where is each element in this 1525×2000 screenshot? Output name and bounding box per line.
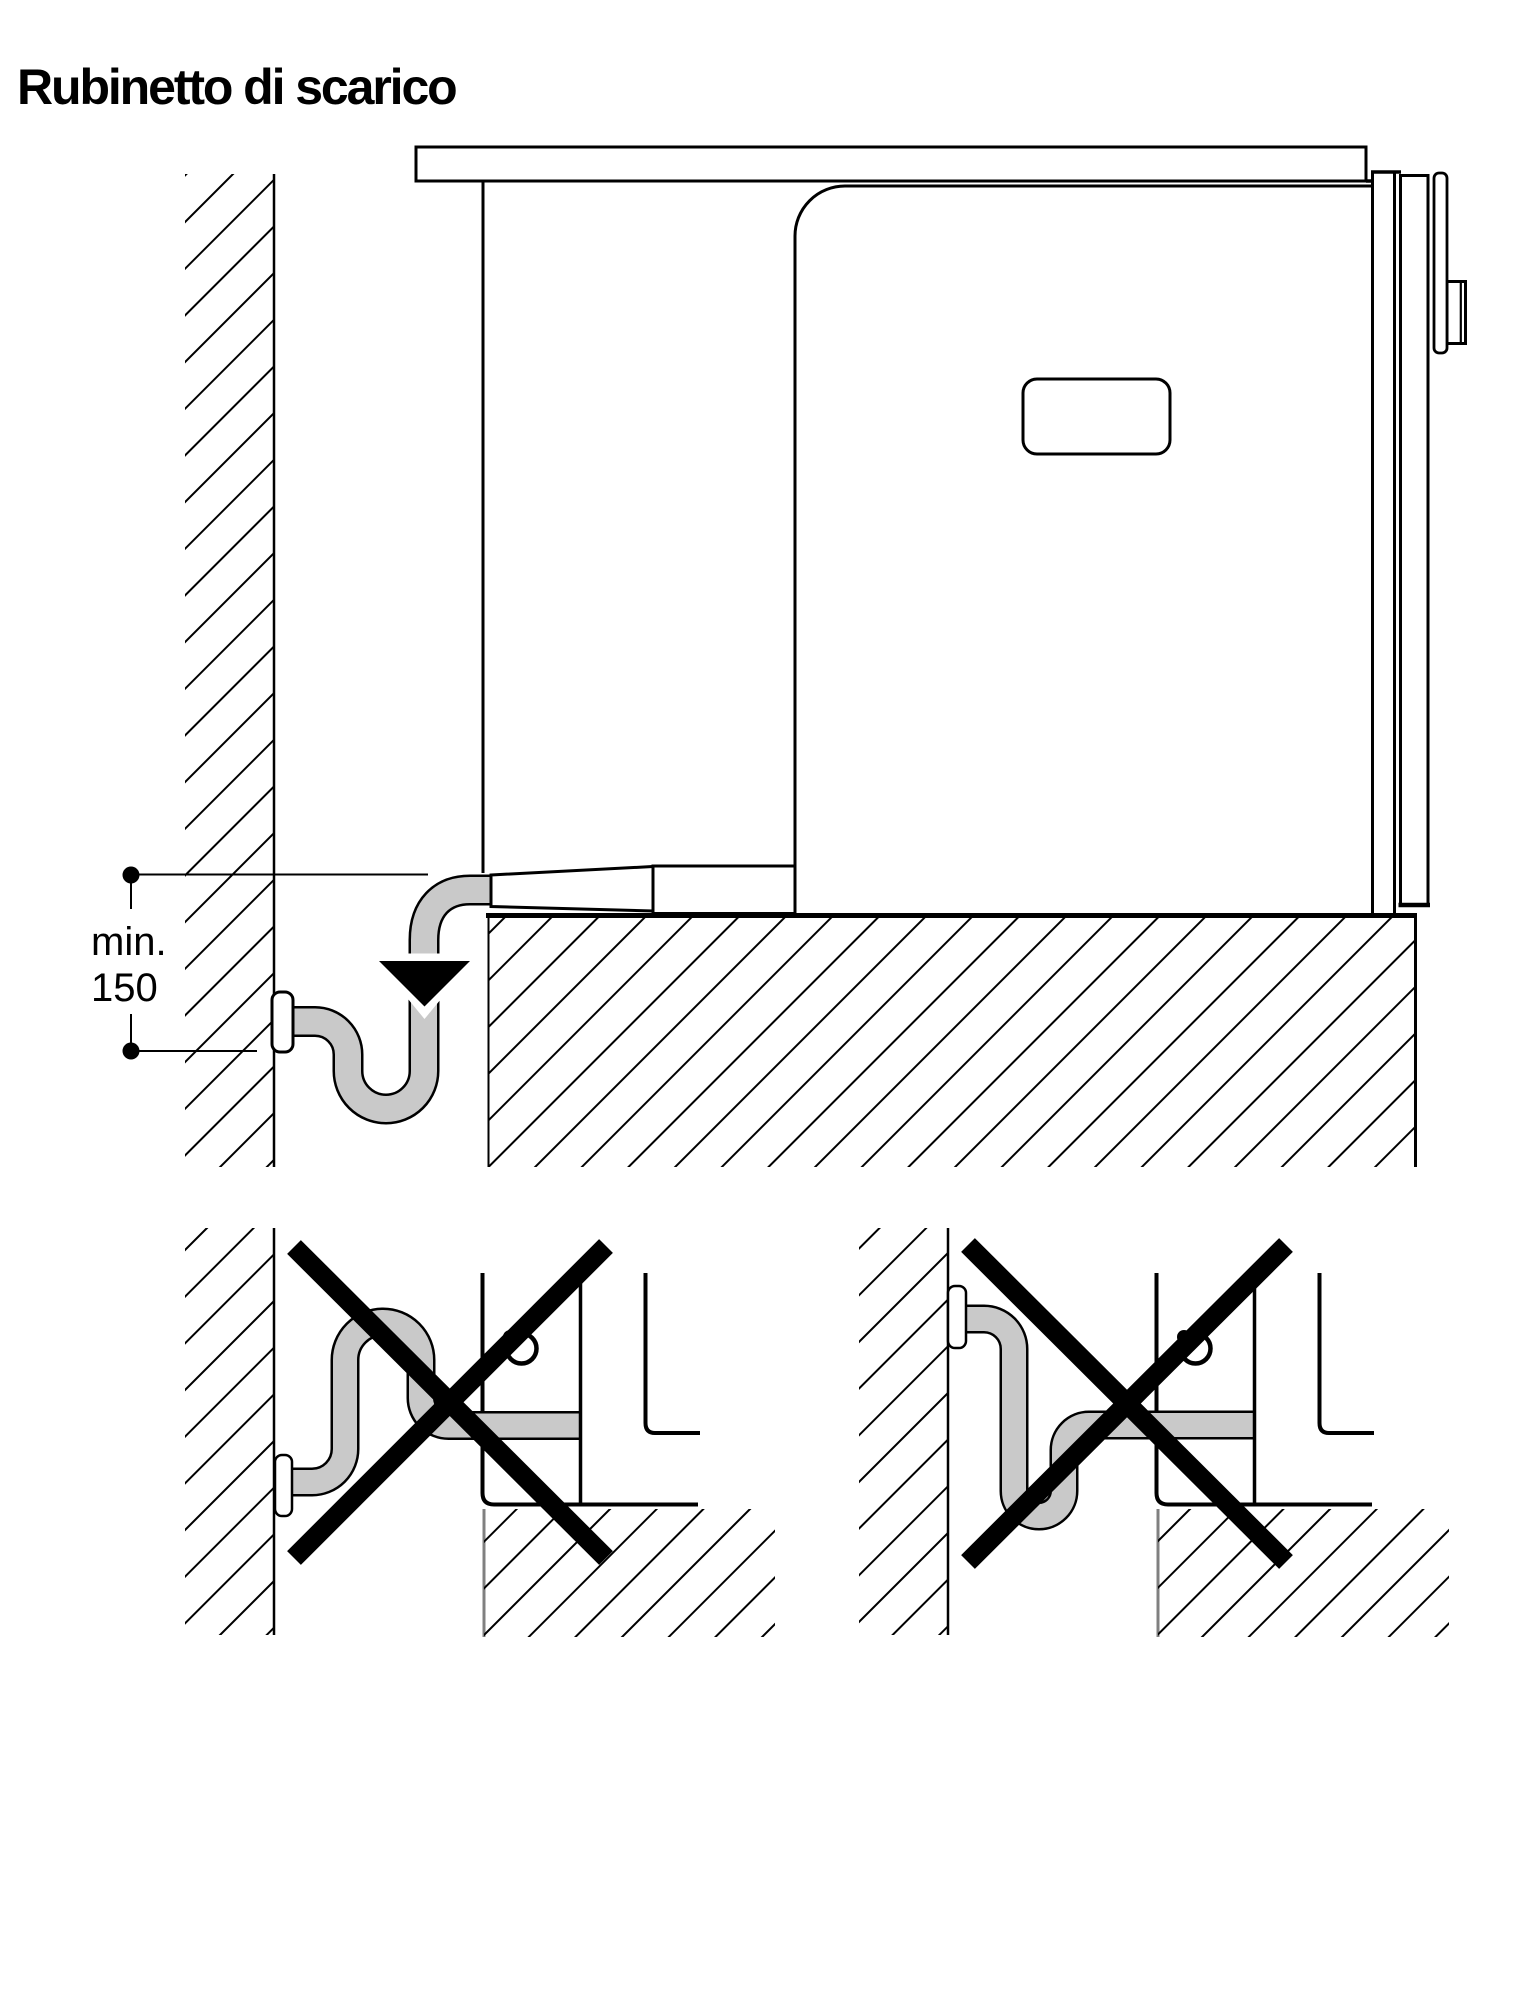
svg-text:150: 150	[91, 966, 158, 1010]
svg-text:Rubinetto di scarico: Rubinetto di scarico	[17, 59, 456, 115]
svg-text:min.: min.	[91, 920, 167, 964]
